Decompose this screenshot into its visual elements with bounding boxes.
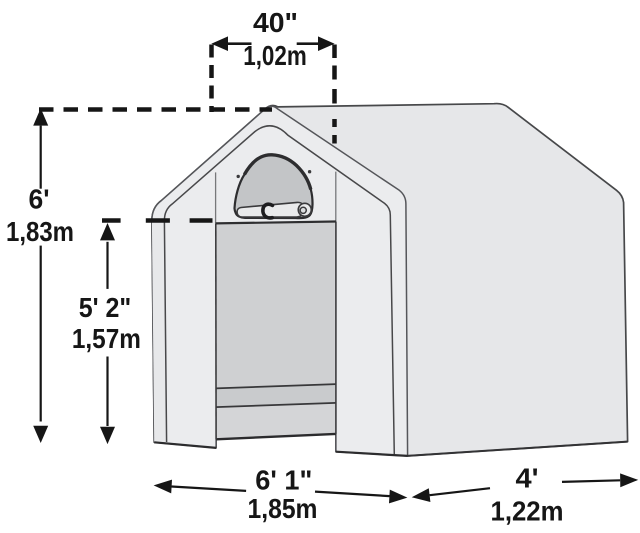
svg-text:5' 2": 5' 2" <box>79 292 132 323</box>
svg-text:6' 1": 6' 1" <box>255 464 312 495</box>
svg-text:1,22m: 1,22m <box>491 495 564 526</box>
svg-text:1,85m: 1,85m <box>248 493 318 524</box>
svg-text:6': 6' <box>29 184 50 215</box>
svg-text:40": 40" <box>253 7 298 38</box>
svg-text:1,83m: 1,83m <box>6 216 74 247</box>
svg-text:1,57m: 1,57m <box>72 323 141 354</box>
svg-text:4': 4' <box>516 462 539 493</box>
